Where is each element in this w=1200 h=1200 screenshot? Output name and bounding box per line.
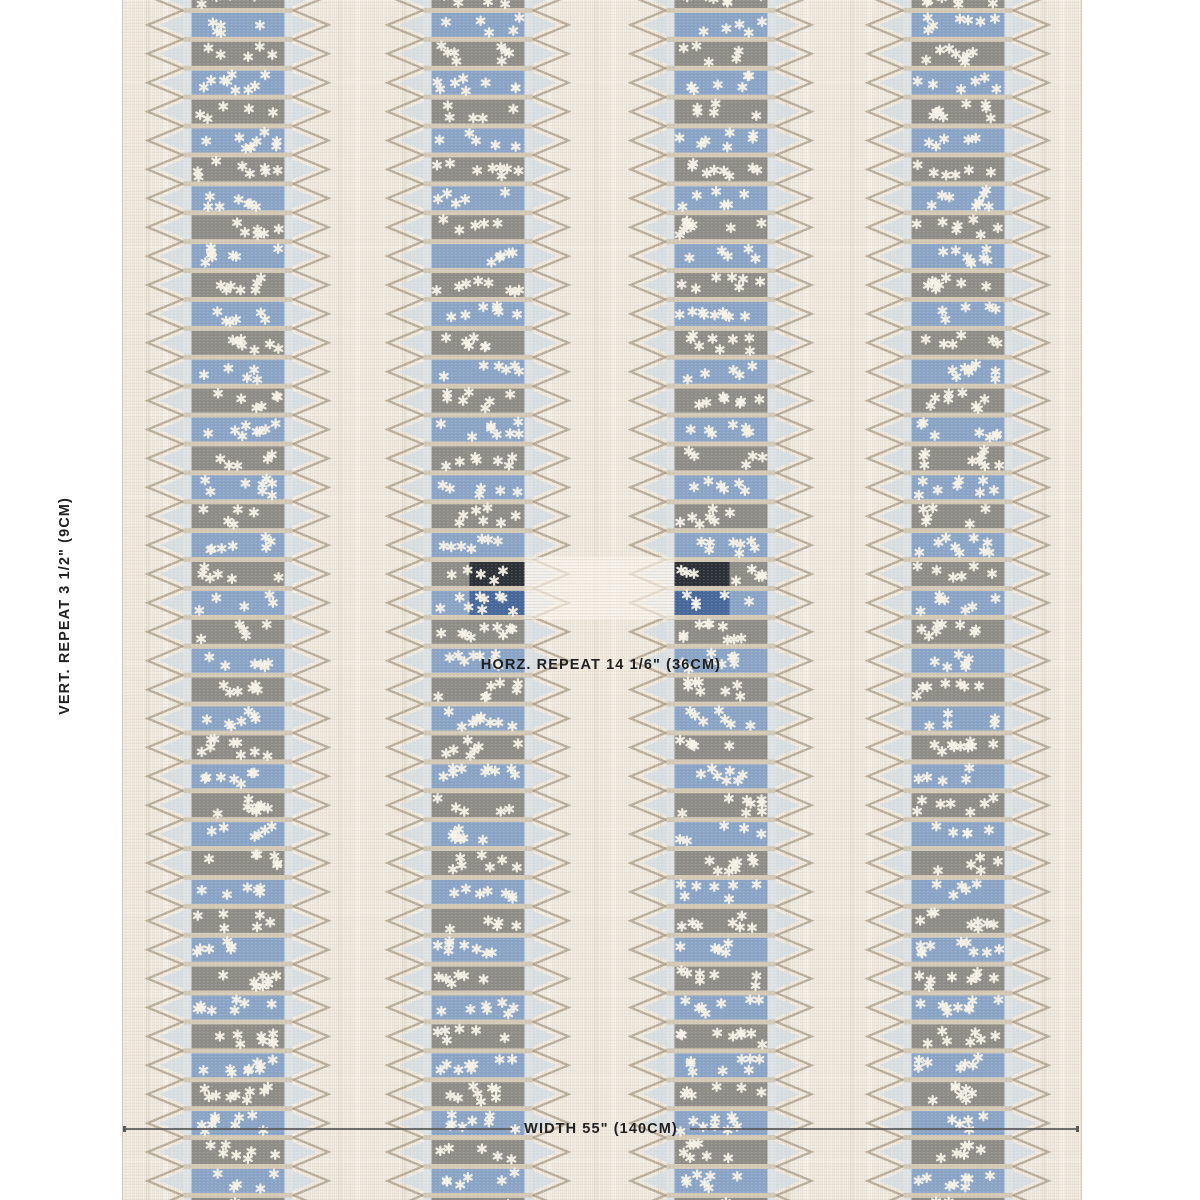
- measure-right-tick: [1076, 1126, 1079, 1132]
- measure-line-left: [126, 1128, 512, 1130]
- fabric-swatch-page: VERT. REPEAT 3 1/2" (9CM) HORZ. REPEAT 1…: [0, 0, 1200, 1200]
- fabric-pattern: [123, 0, 1081, 1200]
- fabric-swatch-photo: [122, 0, 1082, 1200]
- width-label: WIDTH 55" (140CM): [524, 1121, 678, 1137]
- vertical-repeat-label: VERT. REPEAT 3 1/2" (9CM): [57, 497, 73, 715]
- measure-line-right: [690, 1128, 1076, 1130]
- horizontal-repeat-label: HORZ. REPEAT 14 1/6" (36CM): [481, 657, 721, 673]
- width-measure: WIDTH 55" (140CM): [123, 1122, 1079, 1136]
